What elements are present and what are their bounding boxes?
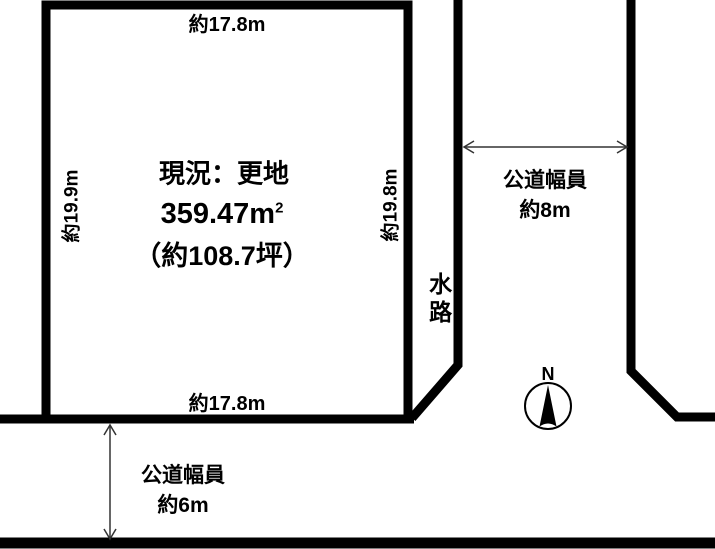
plot-area-tsubo-label: （約108.7坪）: [134, 242, 310, 272]
east-road-width-label-line1: 公道幅員: [503, 166, 587, 196]
east-road-width-label-line2: 約8m: [503, 196, 587, 226]
plot-width-top-label: 約17.8m: [189, 14, 266, 36]
south-road-width-arrow: [104, 425, 116, 539]
plot-width-bottom-label: 約17.8m: [189, 393, 266, 415]
east-road-east-edge: [631, 0, 715, 417]
diagram-linework: [0, 0, 715, 549]
land-plot-diagram: 約17.8m 約17.8m 約19.9m 約19.8m 現況：更地 359.47…: [0, 0, 715, 549]
south-road-width-label-line1: 公道幅員: [141, 461, 225, 491]
east-road-width-arrow: [464, 141, 627, 153]
waterway-east-edge: [412, 0, 458, 418]
plot-area-unit: m: [249, 198, 275, 230]
compass-north-label: N: [542, 365, 555, 385]
plot-depth-left-label: 約19.9m: [63, 170, 84, 243]
south-road-width-label-line2: 約6m: [141, 491, 225, 521]
waterway-label: 水路: [425, 272, 450, 328]
plot-depth-right-label: 約19.8m: [382, 169, 403, 242]
east-road-width-label: 公道幅員 約8m: [503, 166, 587, 226]
plot-area-unit-exponent: 2: [275, 199, 283, 216]
compass-needle-icon: [540, 385, 557, 427]
plot-status-label: 現況：更地: [159, 160, 289, 189]
south-road-width-label: 公道幅員 約6m: [141, 461, 225, 521]
plot-area-value: 359.47: [161, 198, 250, 230]
plot-area-label: 359.47m2: [161, 199, 284, 231]
